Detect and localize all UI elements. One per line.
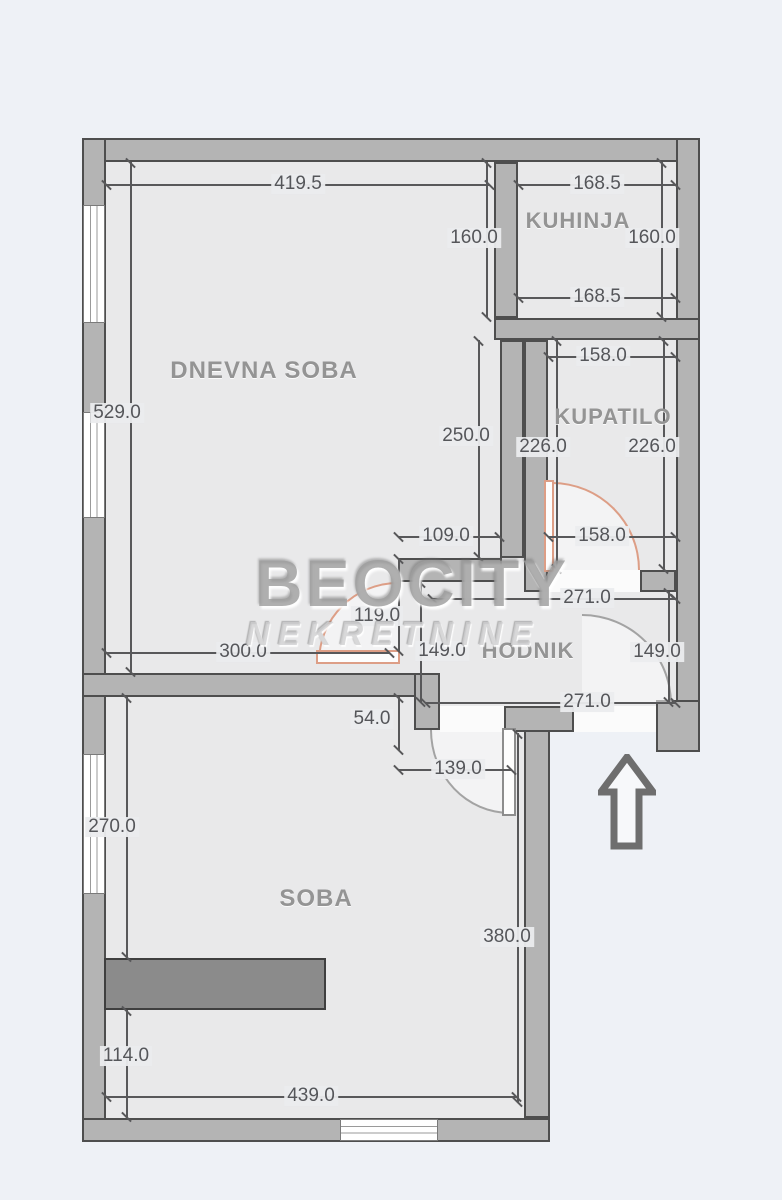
dimension-label: 439.0 xyxy=(284,1086,338,1106)
dimension-label: 529.0 xyxy=(90,403,144,423)
dimension-label: 226.0 xyxy=(625,437,679,457)
wall-top xyxy=(82,138,700,162)
dimension-label: 168.5 xyxy=(570,287,624,307)
wall-bath-bottom xyxy=(640,570,676,592)
window-living-lower xyxy=(83,412,105,518)
dimension-line xyxy=(517,733,519,1103)
watermark-nekretnine: NEKRETNINE xyxy=(246,615,541,653)
floor-plan: 419.5 168.5 160.0 160.0 168.5 158.0 529.… xyxy=(0,0,782,1200)
dimension-label: 168.5 xyxy=(570,174,624,194)
wall-soba-right xyxy=(524,730,550,1118)
dimension-label: 226.0 xyxy=(516,437,570,457)
soba-door-opening xyxy=(440,706,504,732)
dimension-label: 160.0 xyxy=(447,228,501,248)
wall-kitchen-bottom xyxy=(494,318,700,340)
dimension-label: 158.0 xyxy=(576,346,630,366)
entrance-arrow-icon xyxy=(598,754,656,850)
dimension-label: 250.0 xyxy=(439,426,493,446)
dimension-line xyxy=(425,702,676,704)
room-label-soba: SOBA xyxy=(279,885,352,913)
window-living-upper xyxy=(83,205,105,323)
dimension-label: 109.0 xyxy=(419,526,473,546)
dimension-label: 139.0 xyxy=(431,759,485,779)
dimension-line xyxy=(478,340,480,558)
dimension-label: 380.0 xyxy=(480,927,534,947)
dimension-label: 160.0 xyxy=(625,228,679,248)
dimension-label: 271.0 xyxy=(560,692,614,712)
room-label-kupatilo: KUPATILO xyxy=(554,404,671,430)
wall-bottom xyxy=(82,1118,550,1142)
wall-room-divider xyxy=(82,673,440,697)
dimension-label: 419.5 xyxy=(271,174,325,194)
dimension-label: 270.0 xyxy=(85,817,139,837)
dimension-line xyxy=(398,697,400,751)
room-label-dnevna-soba: DNEVNA SOBA xyxy=(170,357,357,385)
window-soba-bottom xyxy=(340,1119,438,1141)
dimension-label: 158.0 xyxy=(575,526,629,546)
dimension-label: 114.0 xyxy=(100,1046,152,1066)
dimension-label: 149.0 xyxy=(630,642,684,662)
dimension-label: 54.0 xyxy=(351,709,394,729)
room-label-kuhinja: KUHINJA xyxy=(526,208,631,234)
watermark-beocity: BEOCITY xyxy=(255,545,569,621)
wardrobe xyxy=(104,958,326,1010)
